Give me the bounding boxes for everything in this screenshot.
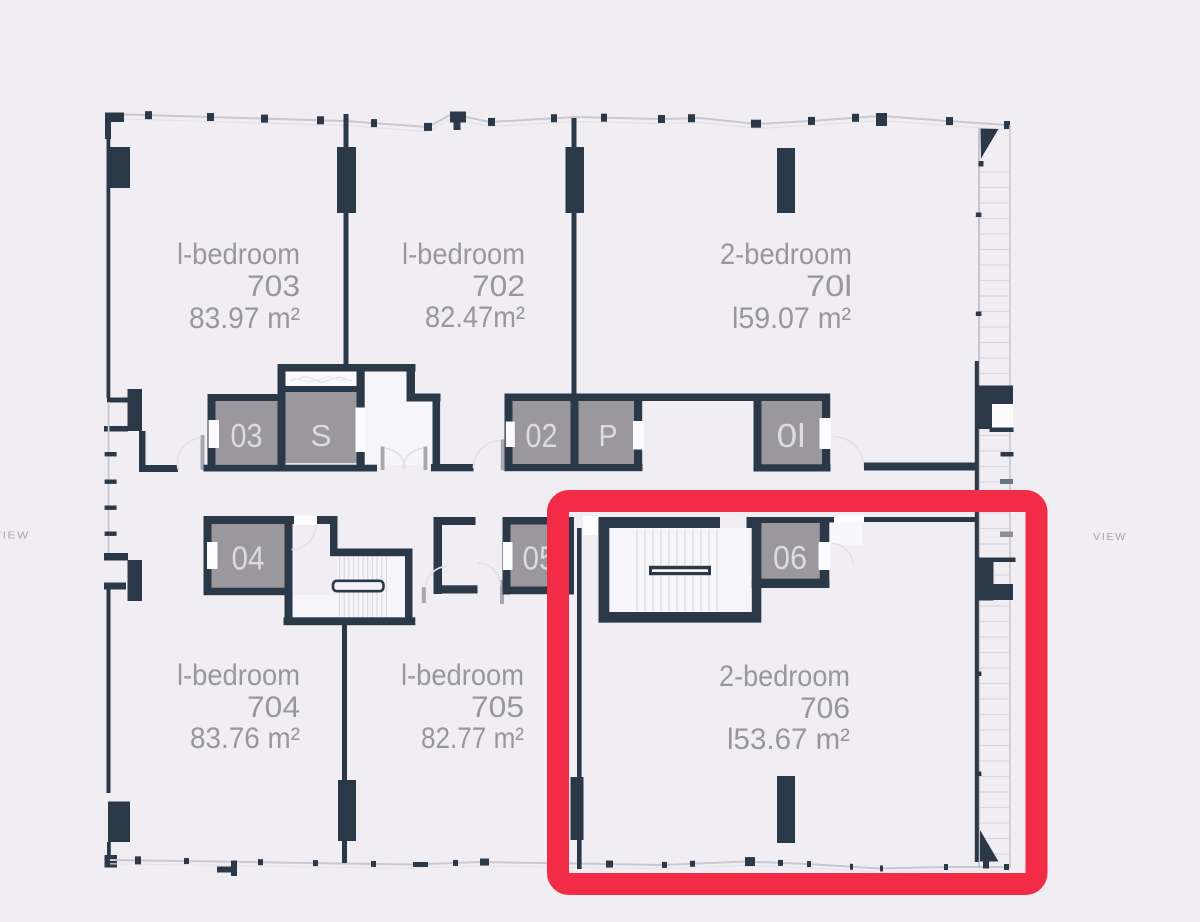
svg-text:l53.67 m²: l53.67 m² bbox=[727, 723, 850, 756]
svg-text:82.47m²: 82.47m² bbox=[425, 301, 525, 334]
svg-text:l-bedroom: l-bedroom bbox=[401, 659, 524, 692]
svg-text:706: 706 bbox=[800, 692, 850, 725]
svg-text:P: P bbox=[599, 418, 618, 453]
svg-text:703: 703 bbox=[247, 270, 300, 303]
svg-text:l59.07 m²: l59.07 m² bbox=[732, 302, 851, 335]
svg-text:04: 04 bbox=[232, 540, 265, 577]
svg-text:l-bedroom: l-bedroom bbox=[177, 659, 300, 692]
svg-text:l-bedroom: l-bedroom bbox=[177, 238, 300, 271]
svg-text:03: 03 bbox=[231, 417, 263, 454]
svg-text:70l: 70l bbox=[806, 270, 852, 303]
svg-text:704: 704 bbox=[247, 691, 300, 724]
svg-text:83.97 m²: 83.97 m² bbox=[189, 302, 300, 335]
svg-text:VIEW: VIEW bbox=[0, 530, 30, 542]
svg-text:702: 702 bbox=[472, 270, 525, 303]
svg-text:705: 705 bbox=[471, 691, 524, 724]
svg-text:l-bedroom: l-bedroom bbox=[402, 238, 525, 271]
svg-text:VIEW: VIEW bbox=[1093, 531, 1127, 543]
svg-text:2-bedroom: 2-bedroom bbox=[720, 238, 852, 271]
svg-text:82.77 m²: 82.77 m² bbox=[421, 722, 524, 755]
svg-text:06: 06 bbox=[773, 539, 807, 576]
svg-text:2-bedroom: 2-bedroom bbox=[719, 660, 850, 693]
svg-text:S: S bbox=[311, 418, 332, 453]
svg-text:0l: 0l bbox=[777, 417, 806, 454]
svg-text:83.76 m²: 83.76 m² bbox=[190, 722, 300, 755]
svg-text:02: 02 bbox=[526, 417, 558, 454]
